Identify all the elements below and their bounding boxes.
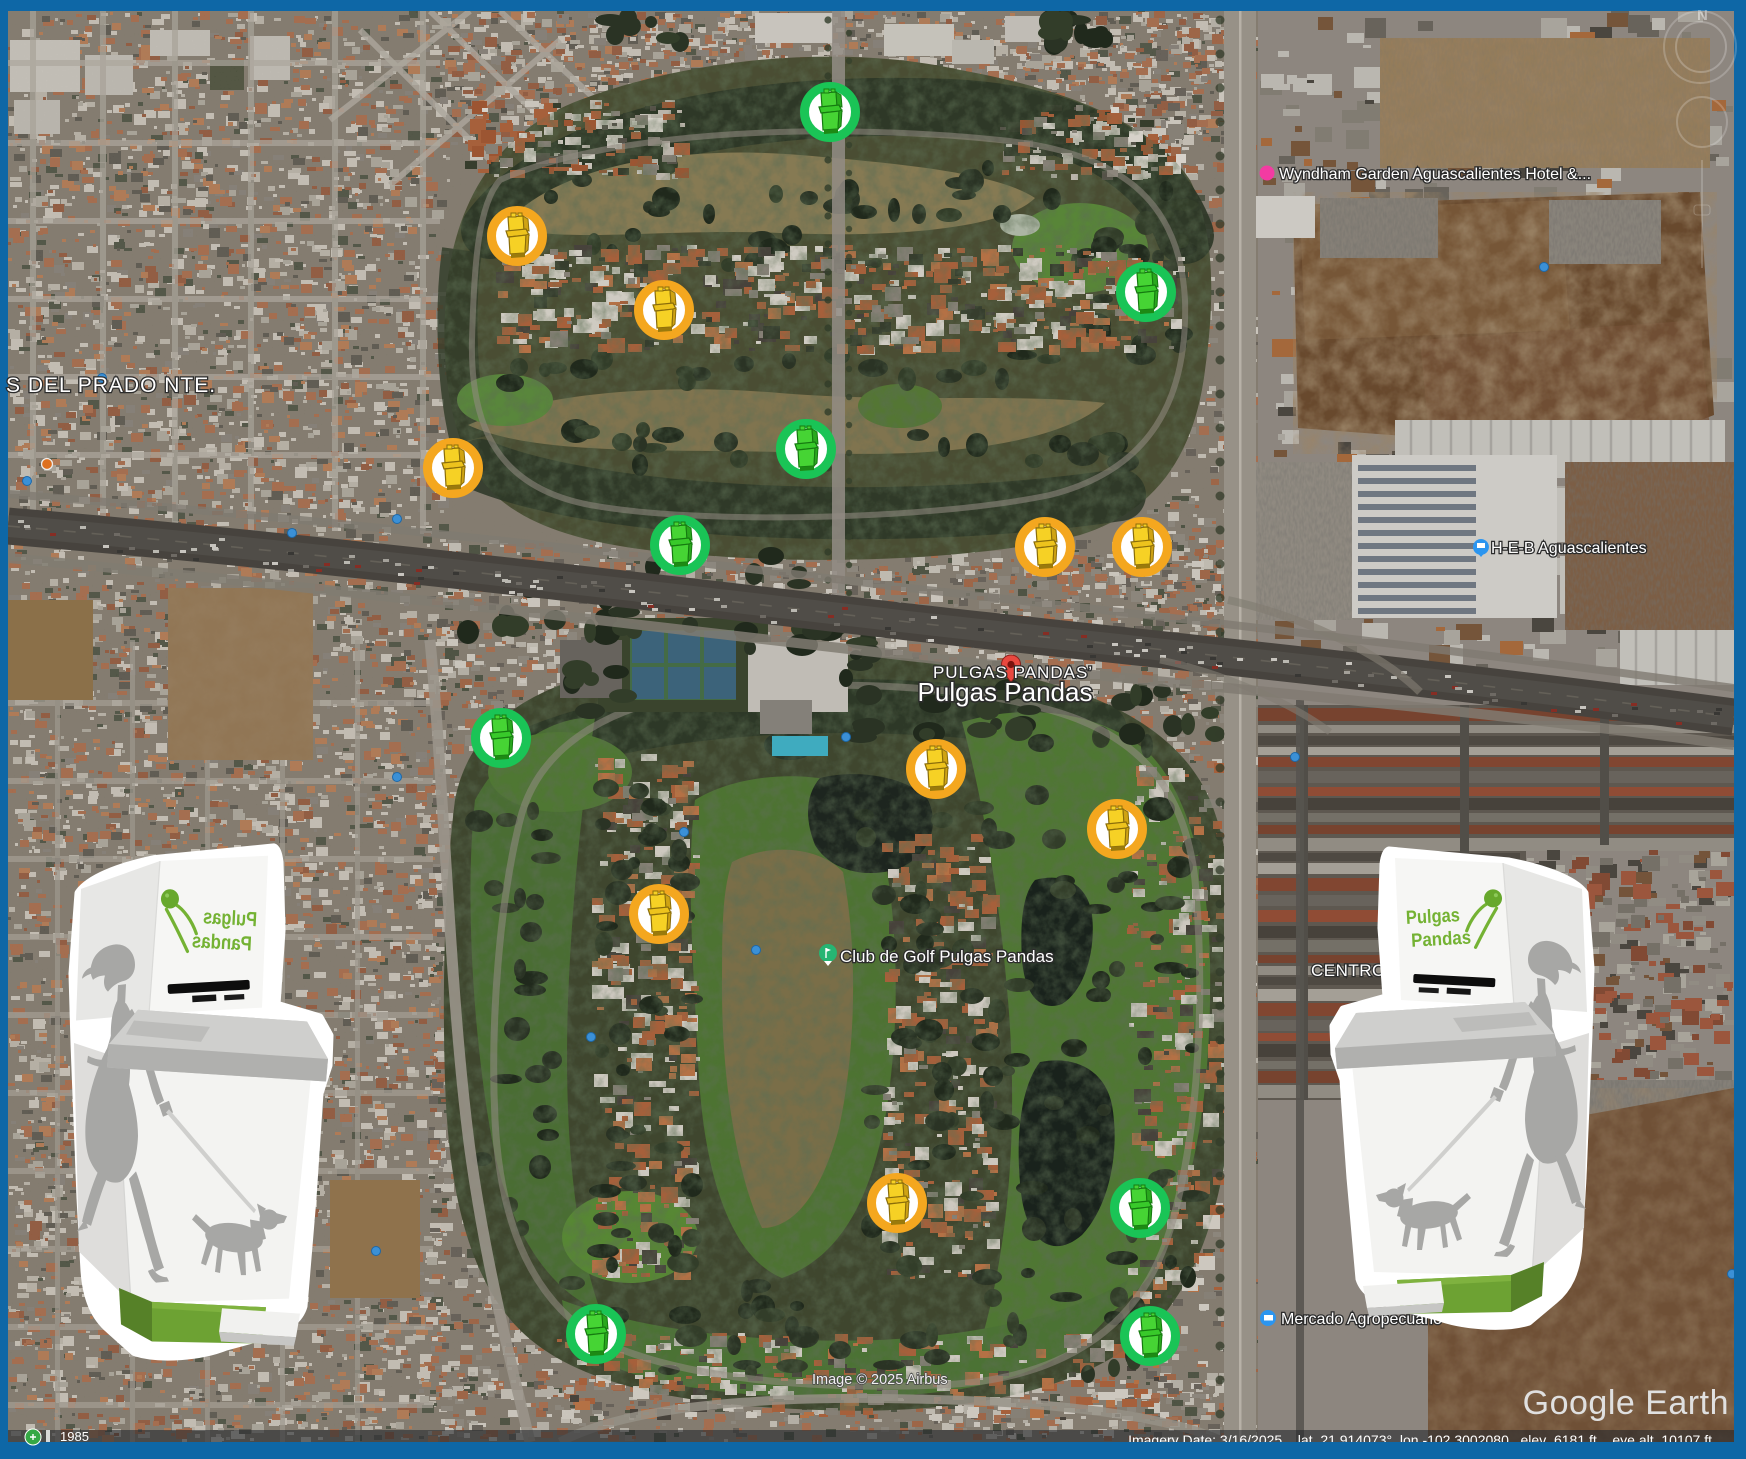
svg-text:Wyndham Garden Aguascalientes: Wyndham Garden Aguascalientes Hotel &... [1279,166,1591,183]
svg-text:Pulgas Pandas: Pulgas Pandas [918,677,1093,707]
svg-text:Google Earth: Google Earth [1523,1384,1729,1422]
svg-text:Image © 2025 Airbus: Image © 2025 Airbus [812,1372,948,1388]
svg-text:S DEL PRADO NTE.: S DEL PRADO NTE. [6,374,216,397]
svg-text:H-E-B Aguascalientes: H-E-B Aguascalientes [1491,540,1647,557]
svg-text:1985: 1985 [60,1429,89,1444]
svg-text:Club de Golf Pulgas Pandas: Club de Golf Pulgas Pandas [840,947,1054,966]
